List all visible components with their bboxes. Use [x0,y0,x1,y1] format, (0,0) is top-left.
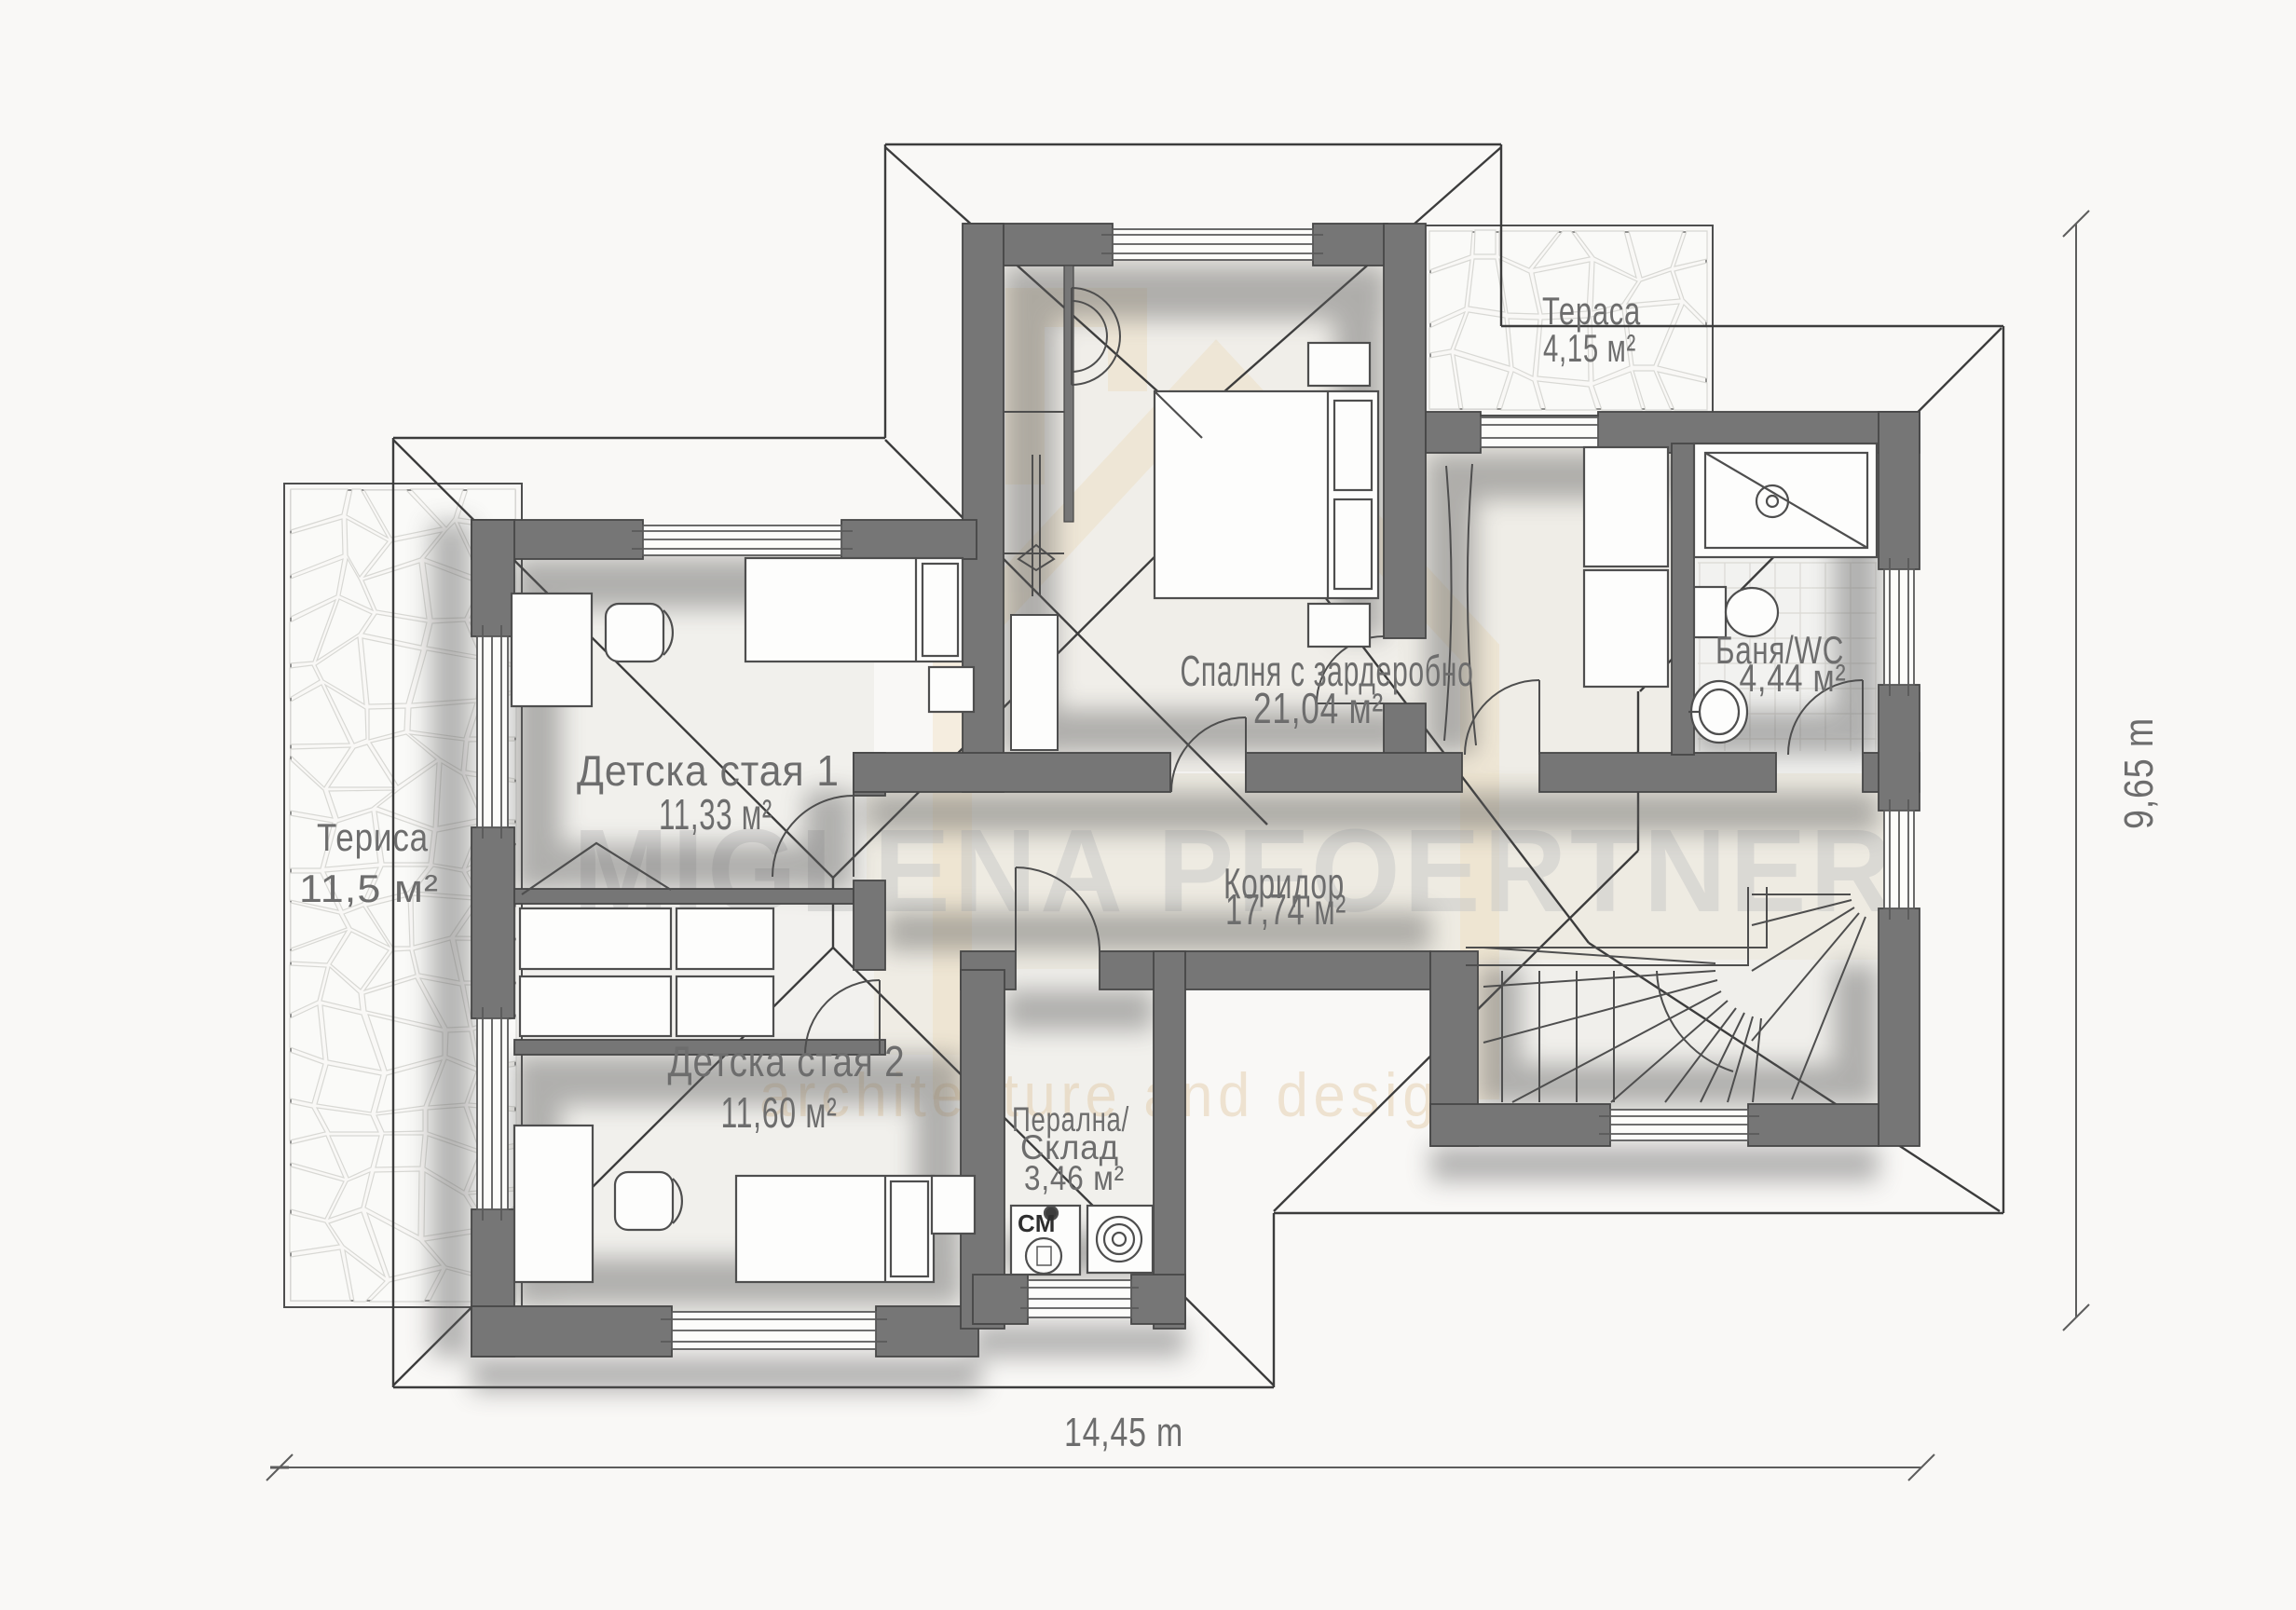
svg-text:CM: CM [1018,1209,1055,1237]
svg-text:Детска стая 1: Детска стая 1 [577,746,840,795]
svg-text:21,04 м²: 21,04 м² [1253,684,1384,732]
svg-text:9,65 m: 9,65 m [2116,717,2162,829]
svg-text:11,33 м²: 11,33 м² [659,790,772,839]
svg-text:3,46 м²: 3,46 м² [1024,1159,1125,1197]
svg-text:11,5 м²: 11,5 м² [299,866,439,910]
svg-text:17,74 м²: 17,74 м² [1225,885,1346,934]
svg-text:14,45 m: 14,45 m [1064,1410,1183,1455]
svg-text:11,60 м²: 11,60 м² [721,1088,838,1137]
svg-text:Териса: Териса [317,815,429,859]
svg-text:4,15 м²: 4,15 м² [1543,326,1636,370]
svg-text:Детска стая 2: Детска стая 2 [668,1037,906,1085]
svg-text:4,44 м²: 4,44 м² [1740,656,1847,700]
